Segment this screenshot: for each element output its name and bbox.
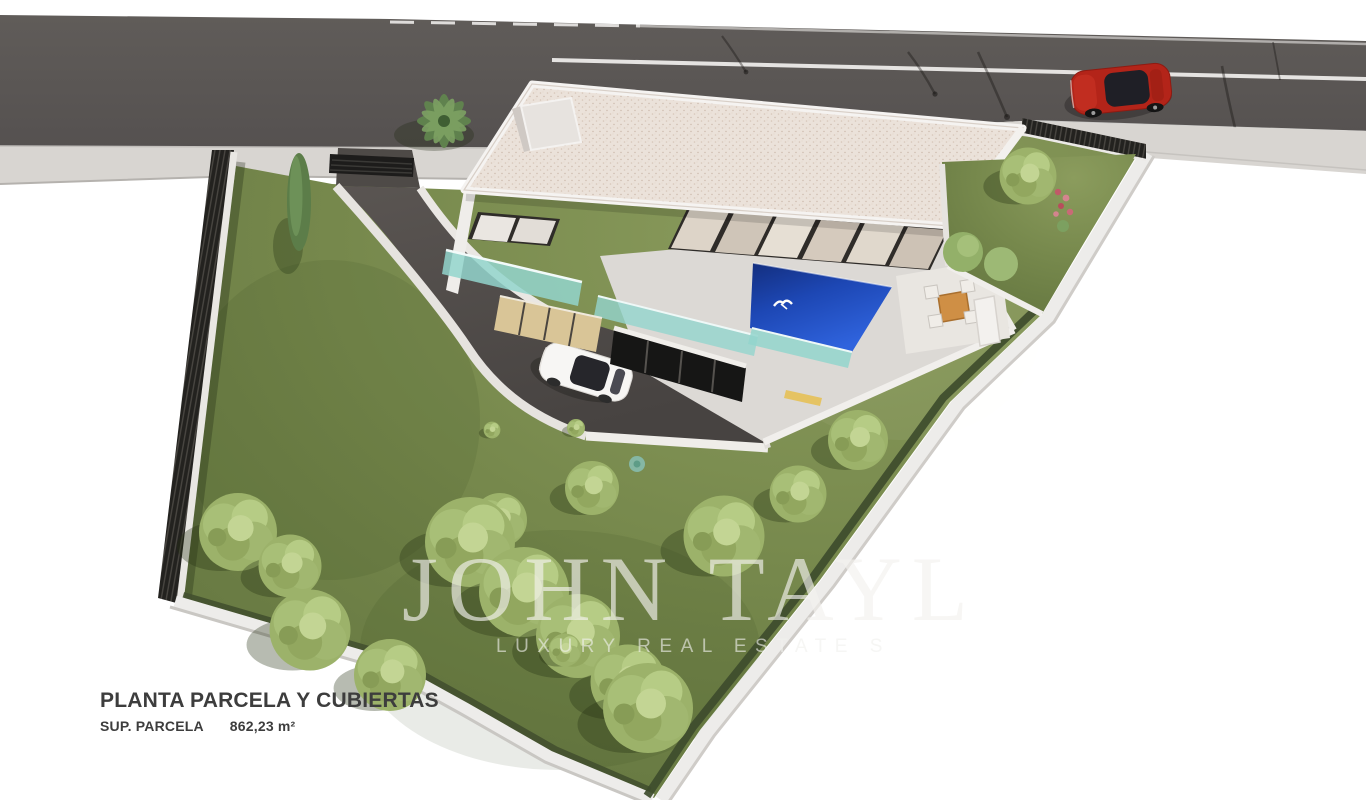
garden-bush <box>984 247 1018 281</box>
agave-plant <box>629 456 645 472</box>
plot-area-label: SUP. PARCELA <box>100 718 204 734</box>
plan-title: PLANTA PARCELA Y CUBIERTAS <box>100 689 439 713</box>
plan-caption: PLANTA PARCELA Y CUBIERTAS SUP. PARCELA8… <box>100 689 439 734</box>
entrance-gate <box>329 154 414 177</box>
render-scene <box>0 0 1366 800</box>
roof-bulkhead <box>512 98 581 152</box>
plot-area-value: 862,23 m² <box>230 718 296 734</box>
site-plan-render: JOHN TAYL LUXURY REAL ESTATE S PLANTA PA… <box>0 0 1366 800</box>
